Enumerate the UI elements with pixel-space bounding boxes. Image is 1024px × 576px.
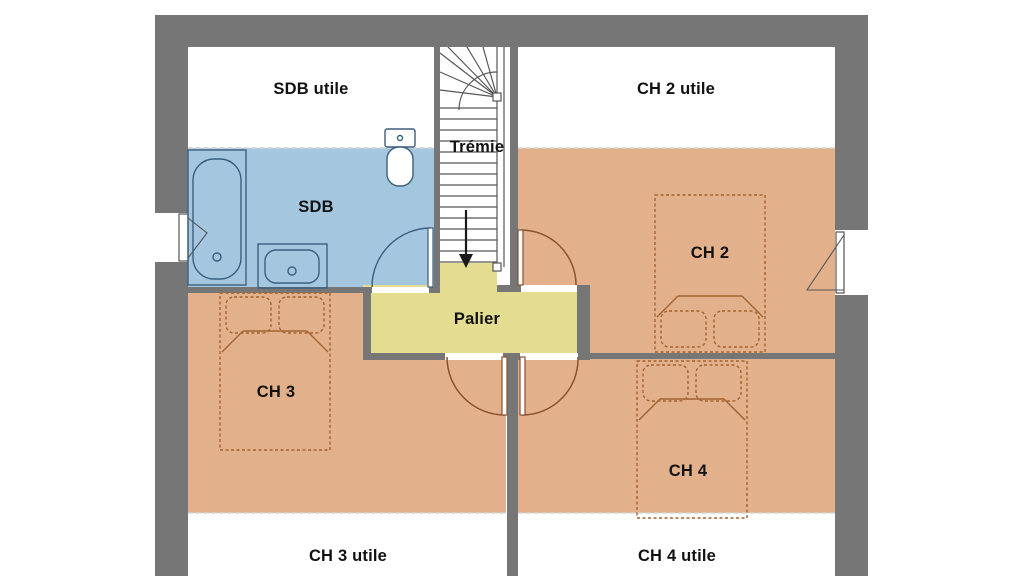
stair-post-bottom [493,263,501,271]
wall-left [155,15,188,576]
zone-ch4 [518,353,835,513]
room-label-tremie: Trémie [450,138,504,156]
room-label-ch4: CH 4 [669,462,708,480]
room-label-ch2: CH 2 [691,244,729,262]
threshold-ch2-door [521,285,577,292]
wall-stub-landing [497,285,521,292]
threshold-sdb-door [372,287,429,293]
stair-treads [440,108,497,262]
room-label-ch3-utile: CH 3 utile [309,547,387,565]
room-label-sdb: SDB [298,198,333,216]
staircase [440,47,504,271]
door-ch3-leaf [502,357,507,415]
wall-right [835,15,868,576]
room-label-ch3: CH 3 [257,383,295,401]
wall-ch2-ch4 [578,353,835,359]
door-sdb-leaf [428,228,433,287]
wall-palier-left [363,287,371,360]
threshold-ch4-door [520,353,578,360]
window-left-frame [179,214,188,261]
wall-ch3-ch4 [507,360,518,576]
door-ch4-leaf [520,357,525,415]
wall-stub-sdb-door [429,287,440,293]
toilet-tank [385,129,415,147]
threshold-ch3-door [445,353,503,360]
door-ch2-leaf [518,230,523,285]
wall-stair-right [510,47,518,292]
room-label-sdb-utile: SDB utile [273,80,348,98]
stair-post-top [493,93,501,101]
room-label-ch4-utile: CH 4 utile [638,547,716,565]
stair-handrail [497,47,504,267]
stair-winder [440,47,497,110]
toilet [385,129,415,186]
room-label-palier: Palier [454,310,501,328]
wall-palier-right [577,285,590,360]
wall-top [155,15,868,47]
wall-palier-bottom-left [363,353,445,360]
wall-stair-left [434,47,440,293]
room-label-ch2-utile: CH 2 utile [637,80,715,98]
toilet-bowl [387,147,413,186]
floor-plan: SDB utile CH 2 utile Trémie SDB CH 2 Pal… [0,0,1024,576]
floor-plan-drawing: SDB utile CH 2 utile Trémie SDB CH 2 Pal… [0,0,1024,576]
